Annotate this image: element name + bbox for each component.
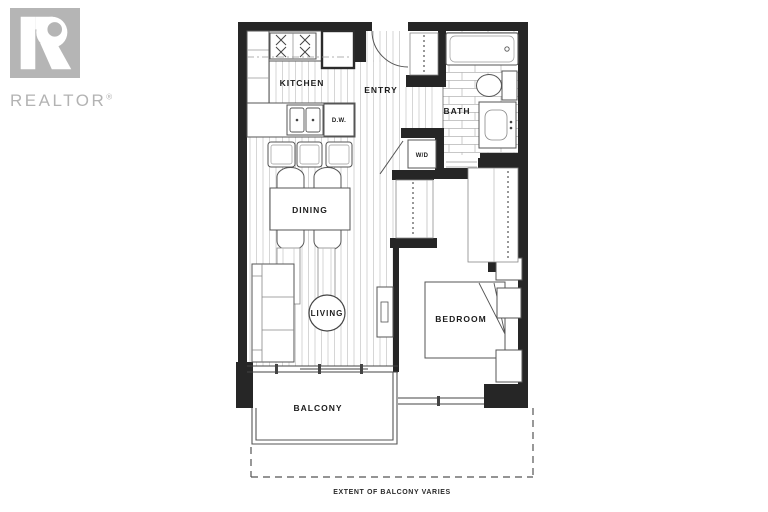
dishwasher-label: D.W. [332, 118, 346, 124]
dining-chair [314, 230, 341, 251]
entry-closet [410, 33, 438, 75]
bedroom-fixtures [396, 168, 522, 382]
dining-label: DINING [292, 205, 328, 215]
washer-dryer-label: W/D [416, 153, 429, 159]
refrigerator [322, 31, 354, 68]
bar-stools [268, 142, 352, 167]
toilet-tank [502, 71, 517, 100]
floorplan-drawing: KITCHEN ENTRY BATH D.W. W/D DINING LIVIN… [0, 0, 768, 512]
kitchen-side-counter [247, 31, 269, 103]
bedroom-window [398, 396, 484, 406]
closet-left [396, 180, 433, 238]
bedroom-doorway [446, 162, 477, 167]
bathtub [446, 33, 518, 65]
closet-right [468, 168, 518, 262]
kitchen-label: KITCHEN [280, 78, 325, 88]
balcony-note: EXTENT OF BALCONY VARIES [333, 489, 451, 496]
sofa [252, 264, 294, 362]
floorplan-page: REALTOR® [0, 0, 768, 512]
dining-chair [277, 230, 304, 251]
living-label: LIVING [311, 309, 344, 318]
toilet-bowl [477, 75, 502, 97]
nightstand [496, 350, 522, 382]
living-window [247, 364, 398, 374]
vanity [479, 102, 516, 148]
extent-dashed-line [251, 408, 533, 477]
balcony-label: BALCONY [293, 403, 342, 413]
entry-label: ENTRY [364, 85, 398, 95]
dining-chair [277, 168, 304, 189]
tv-icon [381, 302, 388, 322]
bedroom-label: BEDROOM [435, 314, 486, 324]
kitchen-sink [287, 105, 323, 135]
pillow [497, 288, 521, 318]
bath-label: BATH [444, 106, 471, 116]
dining-chair [314, 168, 341, 189]
